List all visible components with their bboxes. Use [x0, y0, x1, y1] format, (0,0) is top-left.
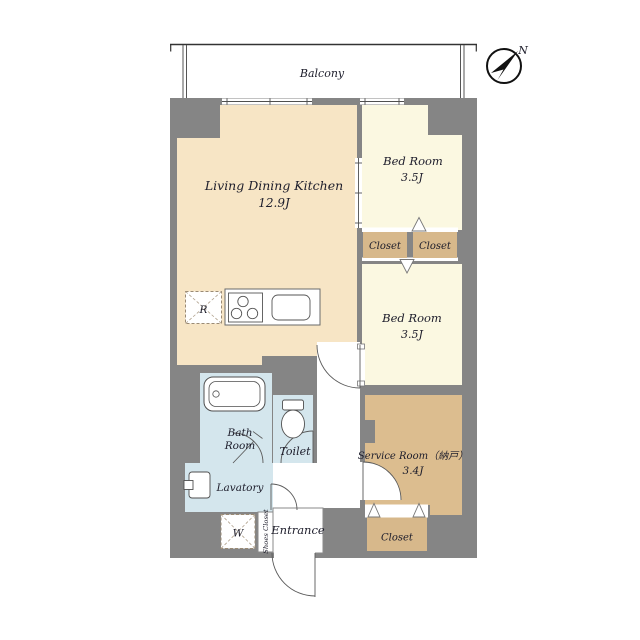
toilet-icon	[282, 400, 305, 438]
entrance-label: Entrance	[270, 523, 325, 537]
compass-north-label: N	[517, 44, 528, 57]
window-ldk	[222, 99, 312, 105]
bedroom-top-size-label: 3.5J	[401, 171, 423, 184]
lavatory-label: Lavatory	[216, 482, 265, 494]
bathtub-icon	[204, 377, 265, 411]
bedroom-mid-doorway	[357, 344, 365, 386]
ldk-size-label: 12.9J	[258, 196, 291, 210]
washer-mark: W	[233, 528, 245, 540]
refrigerator-mark: R	[199, 304, 208, 316]
service-room-name-label: Service Room（納戸）	[358, 450, 468, 462]
bedroom-top-name-label: Bed Room	[382, 154, 443, 168]
closet-bottom-label: Closet	[381, 533, 414, 544]
ldk-bedroom-partition-opening	[355, 158, 362, 228]
toilet-label: Toilet	[279, 445, 311, 458]
floor-plan: Balcony N	[0, 0, 640, 640]
washer-space: W	[221, 515, 255, 549]
kitchen-sink-icon	[272, 295, 310, 320]
ldk-name-label: Living Dining Kitchen	[204, 178, 343, 193]
bath-name-line1-label: Bath	[227, 427, 253, 439]
closet-top-right-label: Closet	[419, 241, 452, 252]
service-wall-notch	[358, 420, 375, 443]
bedroom-mid-name-label: Bed Room	[381, 311, 442, 325]
closet-top-left-label: Closet	[369, 241, 402, 252]
shoes-closet-label: Shoes Closet	[262, 509, 270, 554]
bath-name-line2-label: Room	[224, 440, 256, 452]
stove-icon	[229, 293, 263, 322]
balcony-label: Balcony	[299, 67, 345, 80]
refrigerator-space: R	[186, 292, 222, 324]
service-room-size-label: 3.4J	[403, 465, 425, 477]
room-ldk-floor	[177, 105, 357, 365]
kitchen-counter	[225, 289, 320, 325]
bedroom-mid-size-label: 3.5J	[401, 328, 423, 341]
window-bedroom-top	[360, 99, 404, 105]
closet-track-top	[362, 228, 458, 233]
